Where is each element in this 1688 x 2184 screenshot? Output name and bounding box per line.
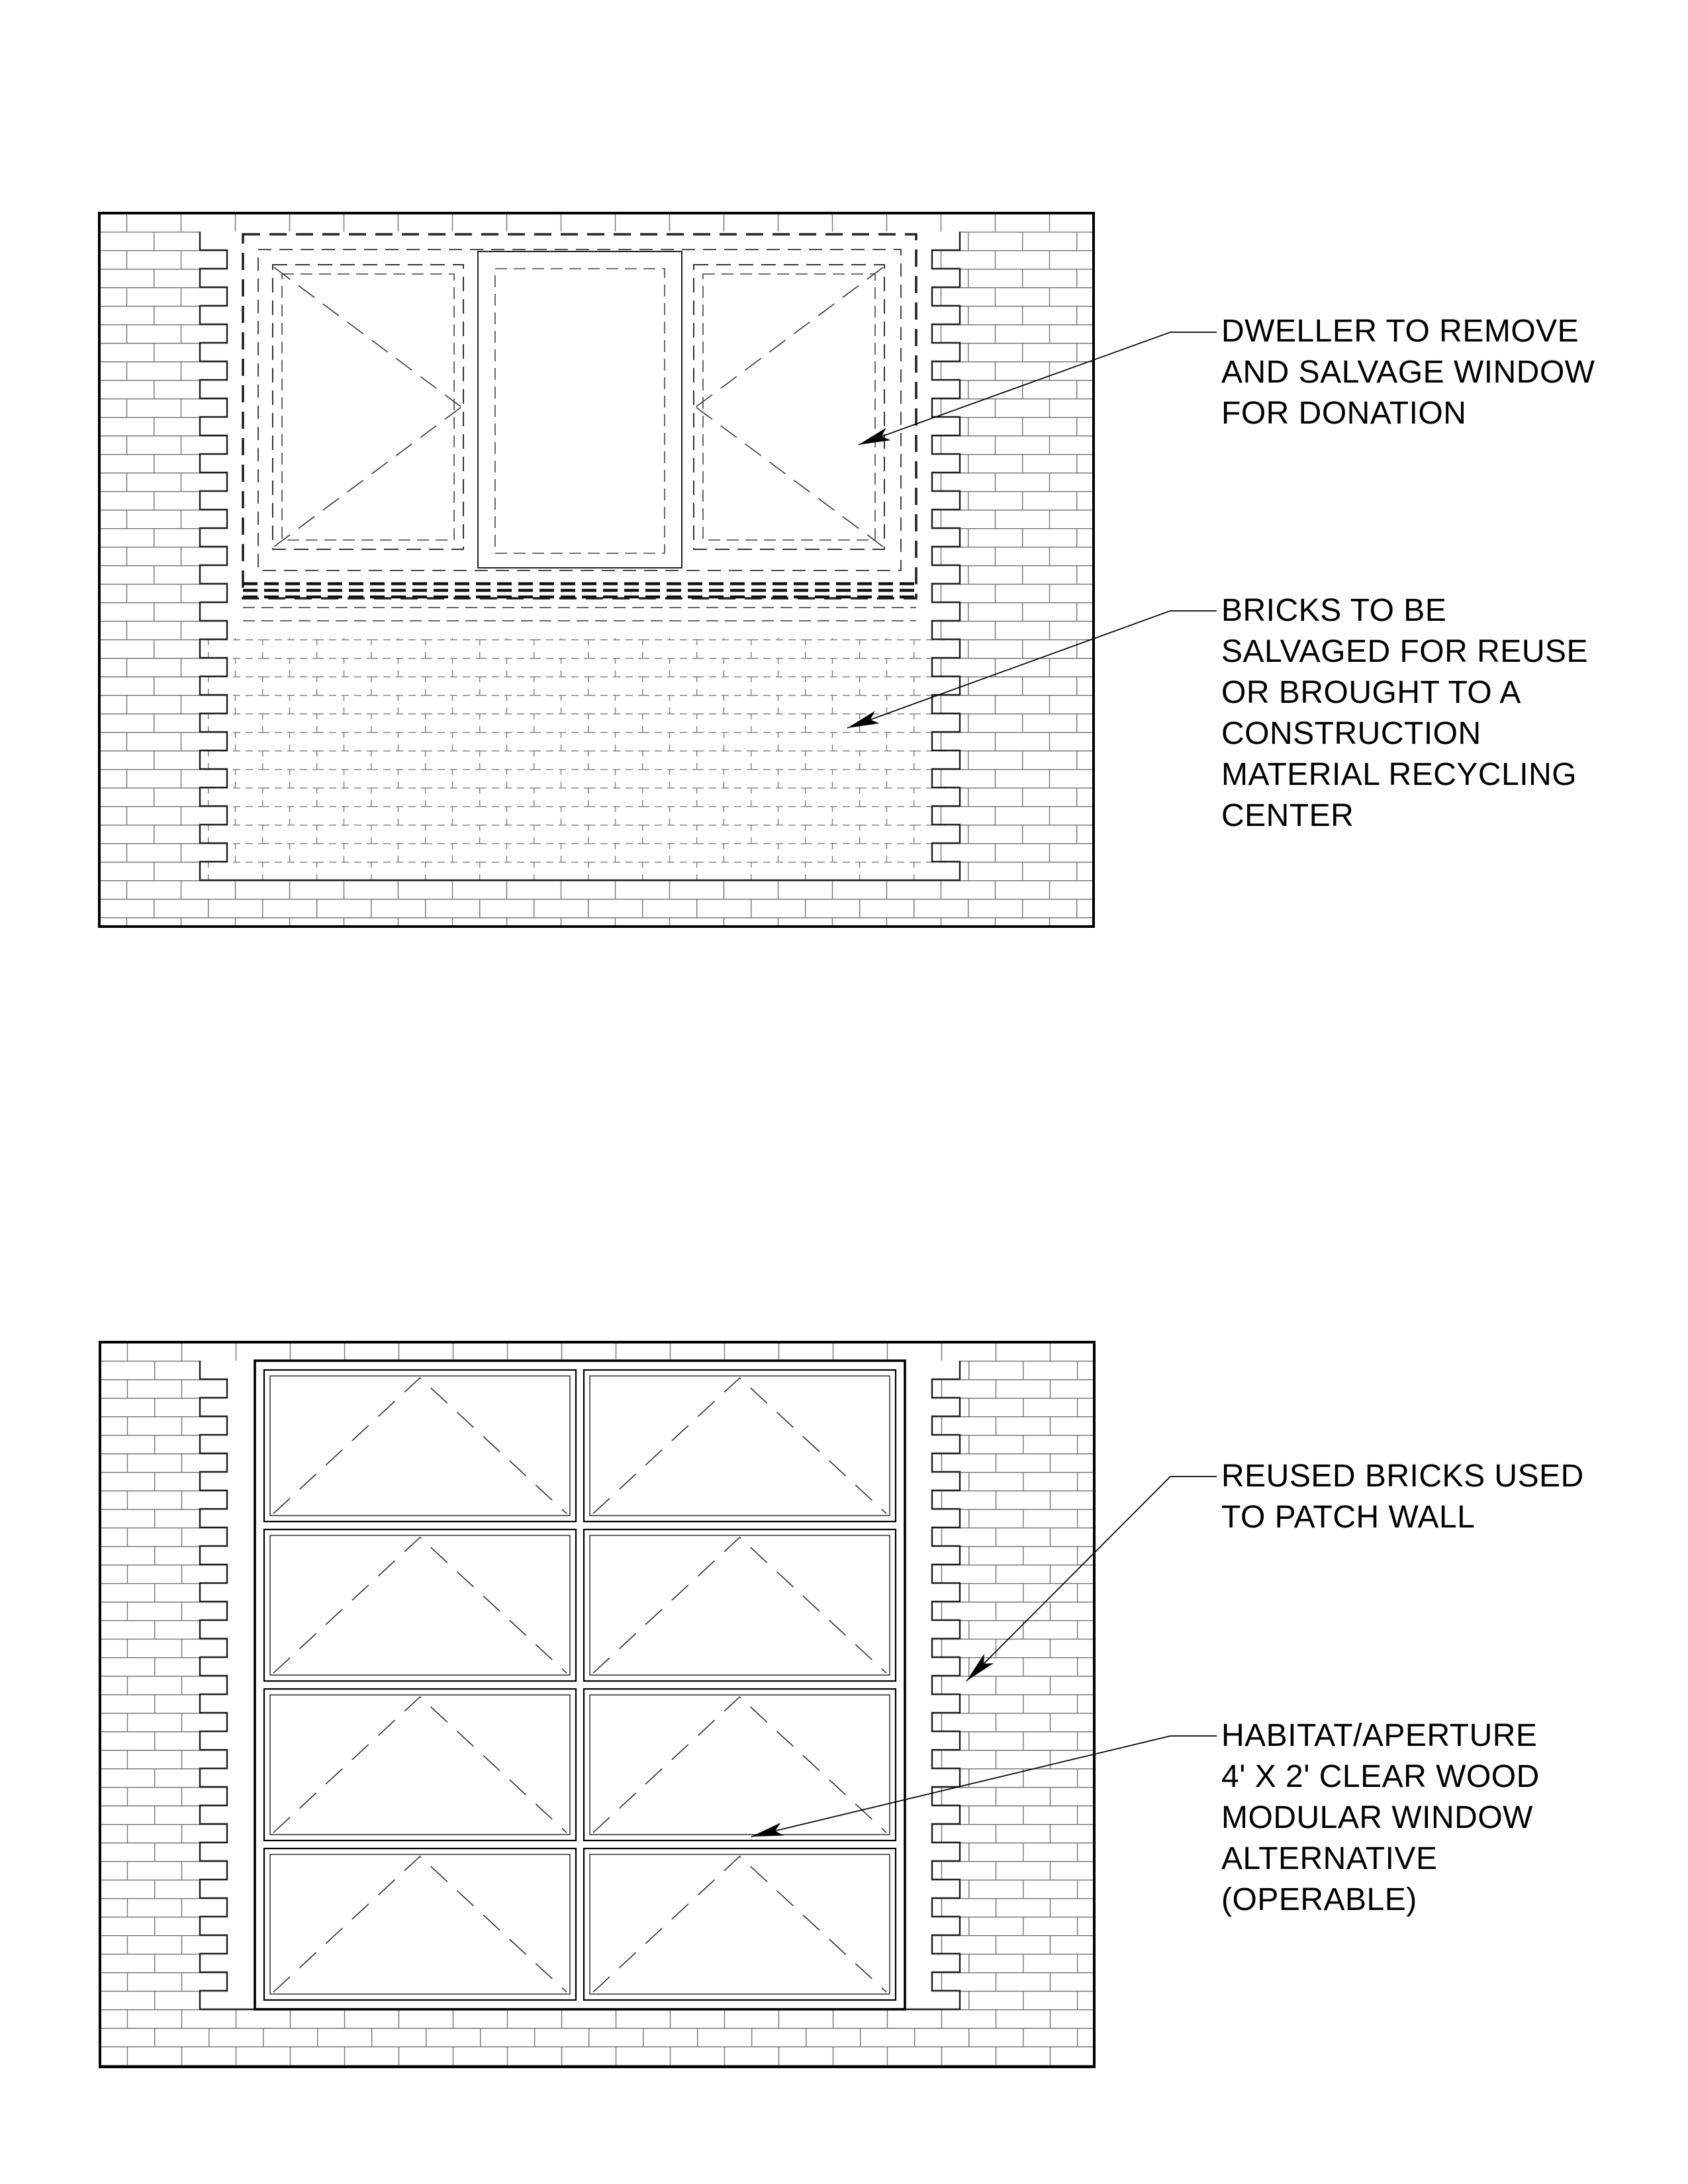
annotation-reused-bricks: REUSED BRICKS USED TO PATCH WALL: [1221, 1456, 1618, 1538]
annotation-window-salvage: DWELLER TO REMOVE AND SALVAGE WINDOW FOR…: [1221, 311, 1618, 434]
window-grid-opening: [200, 1361, 960, 2009]
patched-wall-elevation: [100, 1342, 1094, 2067]
drawing-sheet: DWELLER TO REMOVE AND SALVAGE WINDOW FOR…: [0, 0, 1688, 2184]
annotation-bricks-salvage: BRICKS TO BE SALVAGED FOR REUSE OR BROUG…: [1221, 590, 1618, 837]
existing-wall-elevation: [99, 213, 1094, 927]
annotation-modular-window: HABITAT/APERTURE 4' X 2' CLEAR WOOD MODU…: [1221, 1715, 1618, 1921]
bricks-to-salvage-dashed: [199, 638, 961, 880]
